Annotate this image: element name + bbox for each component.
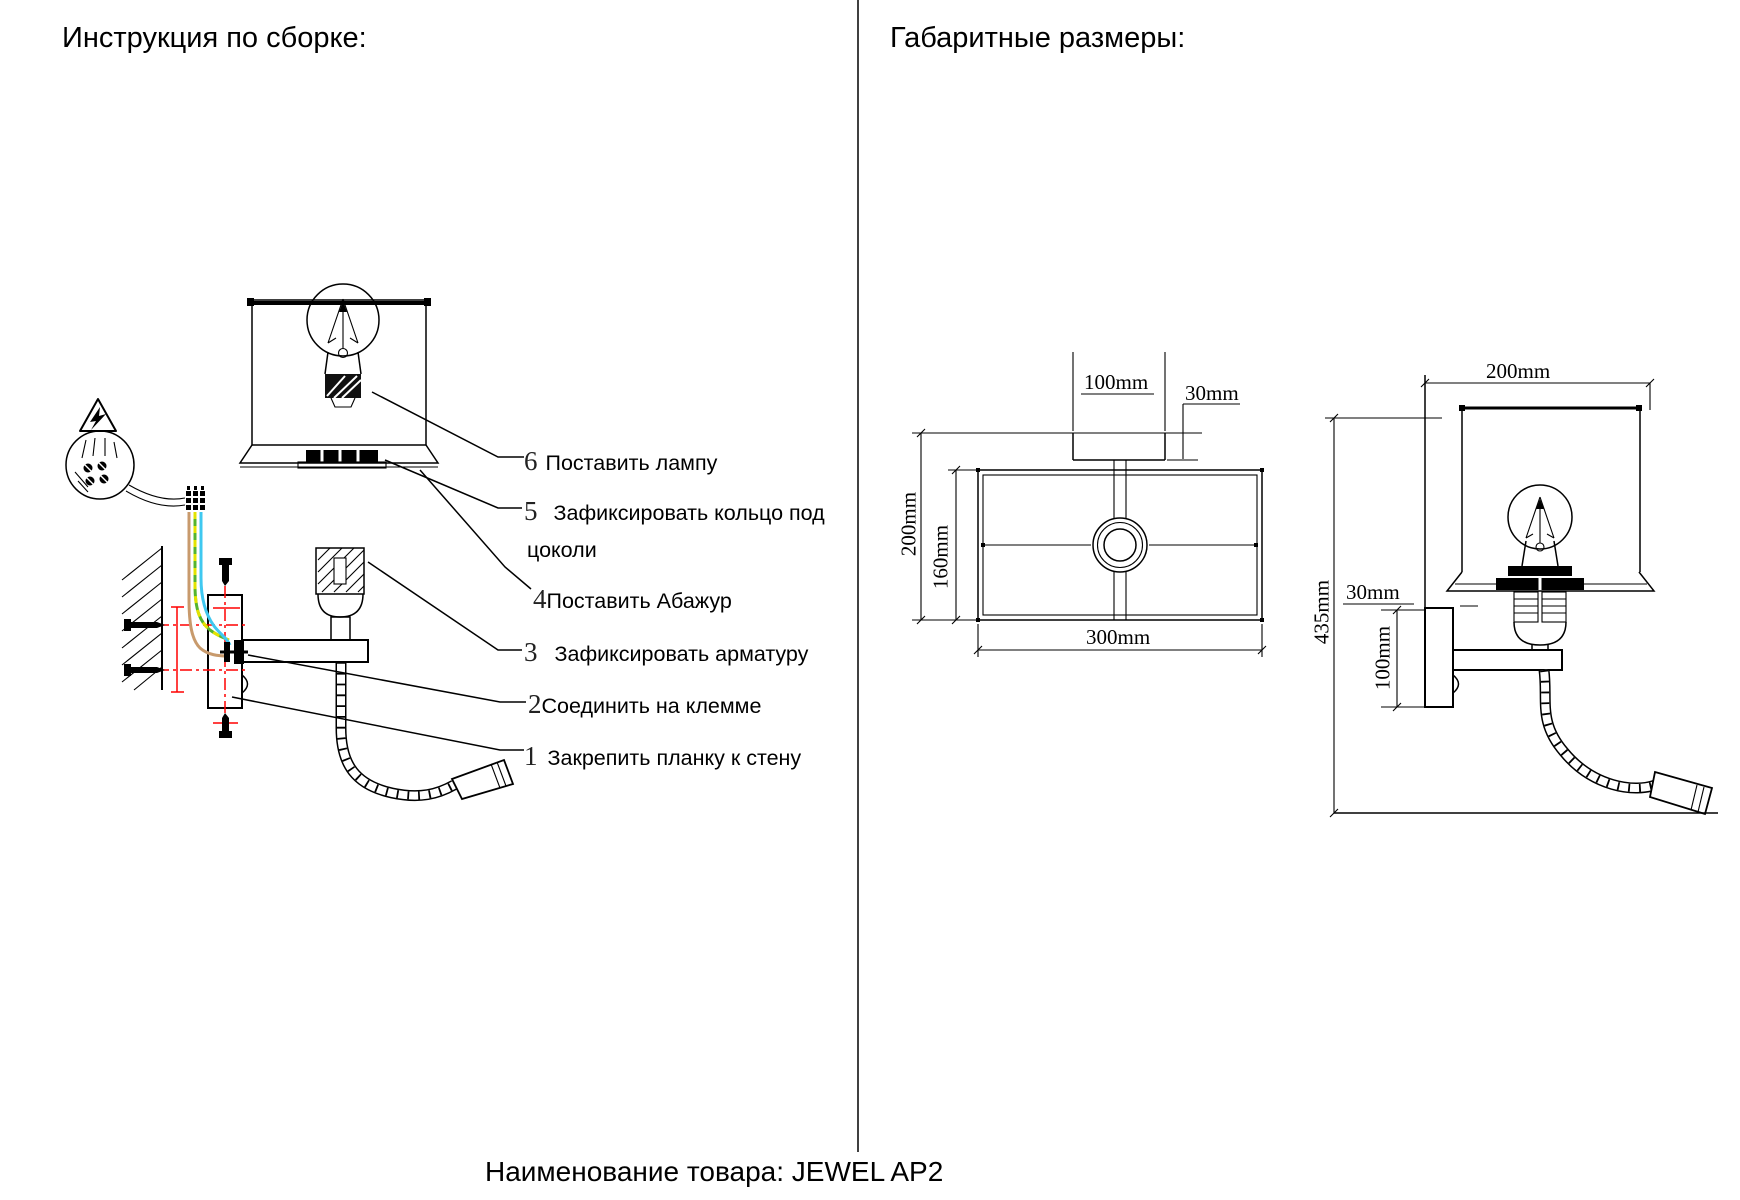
step-number: 6 (524, 446, 538, 477)
terminal-block (186, 486, 205, 510)
step-text: Зафиксировать кольцо под (554, 501, 825, 526)
product-name-label: Наименование товара: JEWEL AP2 (485, 1156, 943, 1188)
side-gooseneck (1544, 670, 1712, 814)
step-text: Соединить на клемме (542, 694, 762, 719)
dim-side-overall-height: 435mm (1310, 580, 1335, 644)
technical-drawing-canvas (0, 0, 1740, 1200)
step-number: 4 (533, 584, 547, 615)
dim-side-backplate-height: 100mm (1371, 626, 1396, 690)
dim-top-canopy-width: 100mm (1084, 370, 1148, 395)
assembly-step-6: 6 Поставить лампу (524, 446, 717, 477)
assembly-step-1: 1 Закрепить планку к стену (524, 741, 801, 772)
dim-top-shade-depth: 200mm (897, 492, 922, 556)
section-title-assembly: Инструкция по сборке: (62, 22, 367, 55)
dim-side-shade-width: 200mm (1486, 359, 1550, 384)
lamp-socket (316, 548, 364, 640)
step-number: 3 (524, 637, 538, 668)
step-number: 1 (524, 741, 538, 772)
bracket-arm (242, 640, 368, 662)
warning-triangle-icon (80, 399, 116, 431)
wire-connector (220, 640, 248, 664)
assembly-step-2: 2 Соединить на клемме (528, 689, 761, 720)
socle-ring (298, 450, 386, 468)
reading-head (452, 760, 513, 799)
step-text: Поставить лампу (546, 451, 718, 476)
side-reading-head (1650, 772, 1712, 814)
assembly-step-4: 4 Поставить Абажур (533, 584, 732, 615)
assembly-drawing (66, 284, 531, 799)
side-bracket-arm (1453, 650, 1562, 670)
dim-top-canopy-height: 30mm (1185, 381, 1239, 406)
mounting-screws (124, 558, 232, 738)
assembly-step-3: 3 Зафиксировать арматуру (524, 637, 808, 668)
step-text: Закрепить планку к стену (548, 746, 802, 771)
step-text: Зафиксировать арматуру (555, 642, 809, 667)
side-shade (1447, 405, 1654, 591)
step-text: Поставить Абажур (547, 589, 732, 614)
instruction-sheet: { "page": { "left_section_title": "Инстр… (0, 0, 1740, 1200)
assembly-step-5-line2: цоколи (527, 538, 597, 563)
step-number: 2 (528, 689, 542, 720)
section-title-dimensions: Габаритные размеры: (890, 22, 1185, 55)
detail-balloon (66, 431, 185, 506)
wall-backplate (1425, 608, 1453, 707)
step-number: 5 (524, 496, 538, 527)
dim-side-bracket-depth: 30mm (1346, 580, 1400, 605)
dim-top-inner-depth: 160mm (929, 525, 954, 589)
assembly-step-5: 5 Зафиксировать кольцо под (524, 496, 825, 527)
dim-top-shade-width: 300mm (1086, 625, 1150, 650)
side-socket (1496, 566, 1584, 650)
side-bulb (1508, 485, 1572, 566)
gooseneck-arm (341, 662, 513, 799)
